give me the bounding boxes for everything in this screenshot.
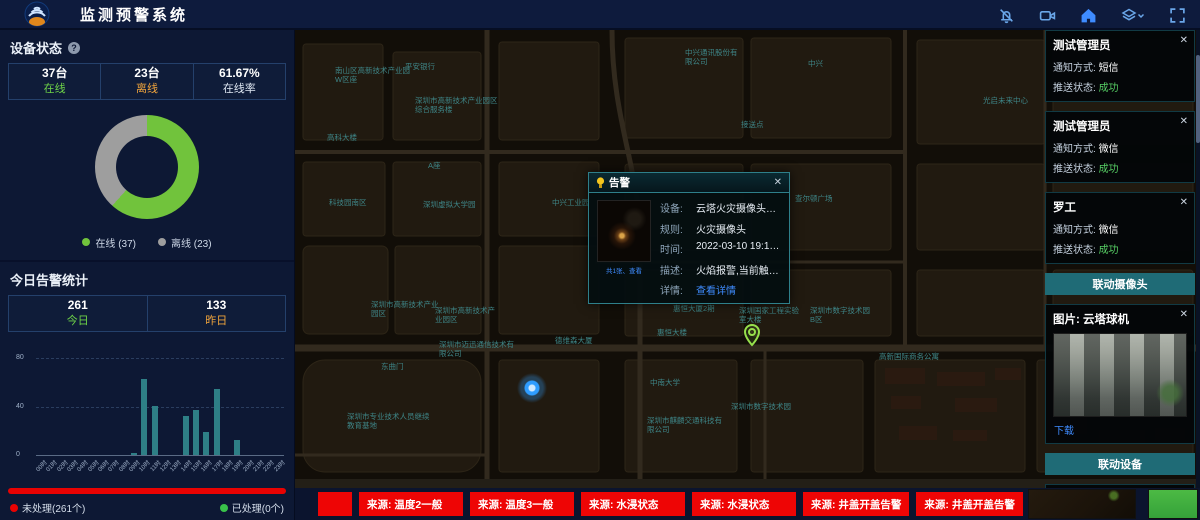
download-link[interactable]: 下载 xyxy=(1054,422,1187,437)
bar xyxy=(46,358,56,455)
map-label: 中兴 xyxy=(808,59,823,68)
bulb-icon xyxy=(596,177,605,189)
alarm-source-chip[interactable]: 来源: 温度2一般 xyxy=(359,492,463,516)
map-label: 高新国际商务公寓 xyxy=(879,352,939,361)
page-title: 监测预警系统 xyxy=(80,4,188,25)
map-label: 深圳市数字技术园 xyxy=(731,402,791,411)
bar xyxy=(98,358,108,455)
map-label: A座 xyxy=(428,161,441,170)
x-tick-label: 14时 xyxy=(181,458,191,480)
notification-name: 测试管理员 xyxy=(1053,37,1187,53)
progress-legend: 未处理(261个) 已处理(0个) xyxy=(10,500,284,515)
today-alarm-section: 今日告警统计 261 今日 133 昨日 80 40 0 00时01时02时03… xyxy=(0,260,294,515)
bar xyxy=(191,358,201,455)
close-icon[interactable]: ✕ xyxy=(1180,36,1188,46)
notification-card: ✕ 罗工 通知方式: 微信 推送状态: 成功 xyxy=(1045,192,1195,264)
green-dot-icon xyxy=(220,504,228,512)
alarm-popup: 告警 ✕ 共1张、查看 设备:云塔火灾摄像头202 规则:火灾摄像头 时间:20… xyxy=(588,172,790,304)
bar xyxy=(274,358,284,455)
map-label: 惠恒大楼 xyxy=(657,328,687,337)
device-status-donut xyxy=(95,115,199,219)
bar xyxy=(212,358,222,455)
map-label: 深圳市迈迅通信技术有限公司 xyxy=(439,340,521,358)
alarm-field-detail: 详情:查看详情 xyxy=(660,282,781,297)
notification-name: 测试管理员 xyxy=(1053,118,1187,134)
alarm-snapshot-caption[interactable]: 共1张、查看 xyxy=(597,265,651,275)
y-tick-label: 0 xyxy=(16,451,20,458)
device-status-title: 设备状态 ? xyxy=(0,34,294,61)
online-count-cell: 37台 在线 xyxy=(9,64,101,99)
offline-count-cell: 23台 离线 xyxy=(101,64,193,99)
map-label: 中兴通讯股份有限公司 xyxy=(685,48,743,66)
help-icon[interactable]: ? xyxy=(68,42,80,54)
x-tick-label: 23时 xyxy=(274,458,284,480)
legend-dot-icon xyxy=(158,238,166,246)
bar xyxy=(139,358,149,455)
app-logo-icon xyxy=(24,1,50,27)
legend-item: 离线 (23) xyxy=(158,235,212,250)
x-tick-label: 01时 xyxy=(46,458,56,480)
alarm-field-device: 设备:云塔火灾摄像头202 xyxy=(660,200,781,215)
map-label: 深圳市数字技术园B区 xyxy=(810,306,874,324)
device-status-chart xyxy=(0,100,294,234)
alarm-field-time: 时间:2022-03-10 19:13:07 xyxy=(660,241,781,256)
left-stats-panel: 设备状态 ? 37台 在线 23台 离线 61.67% 在线率 xyxy=(0,30,295,520)
bar xyxy=(232,358,242,455)
notification-card: ✕ 测试管理员 通知方式: 微信 推送状态: 成功 xyxy=(1045,111,1195,183)
x-tick-label: 11时 xyxy=(150,458,160,480)
close-icon[interactable]: ✕ xyxy=(774,178,782,188)
map-label: 中兴工业园 xyxy=(552,198,590,207)
today-count-cell: 261 今日 xyxy=(9,296,148,331)
bar xyxy=(88,358,98,455)
alarm-field-description: 描述:火焰报警,当前触发值为… xyxy=(660,262,781,277)
bar xyxy=(253,358,263,455)
bar xyxy=(170,358,180,455)
monitoring-dashboard: 监测预警系统 xyxy=(0,0,1200,520)
unhandled-legend: 未处理(261个) xyxy=(10,500,85,515)
map-label: 深圳市麒麟交通科技有限公司 xyxy=(647,416,729,434)
bar xyxy=(108,358,118,455)
alarm-snapshot-image[interactable] xyxy=(597,200,651,262)
bar xyxy=(57,358,67,455)
bar xyxy=(77,358,87,455)
map-label: 科技园南区 xyxy=(329,198,367,207)
map-label: 惠恒大厦2期 xyxy=(673,304,715,313)
fullscreen-icon[interactable] xyxy=(1169,7,1186,24)
right-panel-scrollbar[interactable] xyxy=(1196,30,1200,520)
x-tick-label: 22时 xyxy=(263,458,273,480)
top-bar: 监测预警系统 xyxy=(0,0,1200,30)
bar xyxy=(160,358,170,455)
alarm-source-chip[interactable]: 来源: 井盖开盖告警 xyxy=(916,492,1022,516)
bar xyxy=(150,358,160,455)
chevron-down-icon xyxy=(1139,14,1144,17)
red-dot-icon xyxy=(10,504,18,512)
map-label: 接送点 xyxy=(741,120,764,129)
x-tick-label: 19时 xyxy=(232,458,242,480)
close-icon[interactable]: ✕ xyxy=(1180,117,1188,127)
bar xyxy=(36,358,46,455)
alarm-source-chip[interactable]: 来源: 井盖开盖告警 xyxy=(803,492,909,516)
device-location-dot[interactable] xyxy=(517,373,547,403)
map-label: 深圳国家工程实验室大楼 xyxy=(739,306,805,324)
alarm-source-chip[interactable]: 来源: 水浸状态 xyxy=(692,492,796,516)
x-tick-label: 20时 xyxy=(243,458,253,480)
bottom-alarm-bar: 来源: 温度2一般来源: 温度3一般来源: 水浸状态来源: 水浸状态来源: 井盖… xyxy=(295,488,1200,520)
x-tick-label: 10时 xyxy=(139,458,149,480)
bar xyxy=(181,358,191,455)
map-label: 德维森大厦 xyxy=(555,336,593,345)
map-label: 深圳市高新技术产业园区 xyxy=(435,306,495,324)
bar xyxy=(263,358,273,455)
alarm-popup-header: 告警 ✕ xyxy=(589,173,789,193)
layers-icon[interactable] xyxy=(1121,7,1145,24)
right-alert-panel: ✕ 测试管理员 通知方式: 短信 推送状态: 成功 ✕ 测试管理员 通知方式: … xyxy=(1045,30,1195,520)
video-camera-icon[interactable] xyxy=(1039,7,1056,24)
alarm-popup-body: 共1张、查看 设备:云塔火灾摄像头202 规则:火灾摄像头 时间:2022-03… xyxy=(589,193,789,303)
map-label: 东曲门 xyxy=(381,362,404,371)
map-label: 平安银行 xyxy=(405,62,435,71)
y-tick-label: 80 xyxy=(16,354,24,361)
map-label: 高科大楼 xyxy=(327,133,357,142)
map-label: 中南大学 xyxy=(650,378,680,387)
alarm-progress-bar xyxy=(8,488,286,494)
alarm-source-chip[interactable] xyxy=(318,492,352,516)
donut-legend: 在线 (37)离线 (23) xyxy=(0,234,294,250)
bar xyxy=(222,358,232,455)
yesterday-count-cell: 133 昨日 xyxy=(148,296,286,331)
alarm-field-rule: 规则:火灾摄像头 xyxy=(660,221,781,236)
alarm-popup-title: 告警 xyxy=(609,175,774,190)
map-label: 深圳市专业技术人员继续教育基地 xyxy=(347,412,435,430)
camera-image-label: 图片: 云塔球机 xyxy=(1053,311,1187,327)
linked-device-header: 联动设备 xyxy=(1045,453,1195,475)
today-alarm-title: 今日告警统计 xyxy=(0,266,294,293)
unhandled-progress xyxy=(8,488,286,494)
today-alarm-table: 261 今日 133 昨日 xyxy=(8,295,286,332)
map-pin-icon xyxy=(745,325,759,345)
linked-camera-card: ✕ 图片: 云塔球机 下载 xyxy=(1045,304,1195,444)
x-tick-label: 07时 xyxy=(108,458,118,480)
y-tick-label: 40 xyxy=(16,403,24,410)
x-tick-label: 17时 xyxy=(212,458,222,480)
camera-thumbnail-dark[interactable] xyxy=(1028,489,1136,519)
camera-snapshot-image[interactable] xyxy=(1053,333,1187,417)
view-detail-link[interactable]: 查看详情 xyxy=(696,282,736,297)
legend-item: 在线 (37) xyxy=(82,235,136,250)
x-tick-label: 16时 xyxy=(201,458,211,480)
handled-legend: 已处理(0个) xyxy=(220,500,284,515)
online-rate-cell: 61.67% 在线率 xyxy=(194,64,285,99)
hourly-alarm-bar-chart: 80 40 0 00时01时02时03时04时05时06时07时08时09时10… xyxy=(8,334,286,480)
bar xyxy=(119,358,129,455)
map-label: 深圳虚拟大学园 xyxy=(423,200,476,209)
camera-thumbnail-green[interactable] xyxy=(1148,489,1198,519)
close-icon[interactable]: ✕ xyxy=(1180,310,1188,320)
x-tick-label: 08时 xyxy=(119,458,129,480)
home-icon[interactable] xyxy=(1080,7,1097,24)
close-icon[interactable]: ✕ xyxy=(1180,198,1188,208)
alarm-source-chip[interactable]: 来源: 水浸状态 xyxy=(581,492,685,516)
x-tick-label: 05时 xyxy=(88,458,98,480)
bar xyxy=(67,358,77,455)
device-status-section: 设备状态 ? 37台 在线 23台 离线 61.67% 在线率 xyxy=(0,30,294,250)
top-icon-group xyxy=(998,0,1186,30)
bar xyxy=(201,358,211,455)
alarm-chip-strip: 来源: 温度2一般来源: 温度3一般来源: 水浸状态来源: 水浸状态来源: 井盖… xyxy=(295,492,1023,516)
legend-dot-icon xyxy=(82,238,90,246)
x-tick-label: 02时 xyxy=(57,458,67,480)
map-label: 查尔顿广场 xyxy=(795,194,833,203)
bell-muted-icon[interactable] xyxy=(998,7,1015,24)
map-label: 深圳市高新技术产业园区综合服务楼 xyxy=(415,96,499,114)
bar xyxy=(129,358,139,455)
bar xyxy=(243,358,253,455)
scrollbar-thumb[interactable] xyxy=(1196,55,1200,143)
linked-camera-header: 联动摄像头 xyxy=(1045,273,1195,295)
map-label: 深圳市高新技术产业园区 xyxy=(371,300,439,318)
alarm-source-chip[interactable]: 来源: 温度3一般 xyxy=(470,492,574,516)
x-tick-label: 04时 xyxy=(77,458,87,480)
device-status-table: 37台 在线 23台 离线 61.67% 在线率 xyxy=(8,63,286,100)
notification-name: 罗工 xyxy=(1053,199,1187,215)
notification-card: ✕ 测试管理员 通知方式: 短信 推送状态: 成功 xyxy=(1045,30,1195,102)
map-label: 光启未来中心 xyxy=(983,96,1028,105)
x-tick-label: 13时 xyxy=(170,458,180,480)
map-label: 南山区高新技术产业园W区座 xyxy=(335,66,411,84)
